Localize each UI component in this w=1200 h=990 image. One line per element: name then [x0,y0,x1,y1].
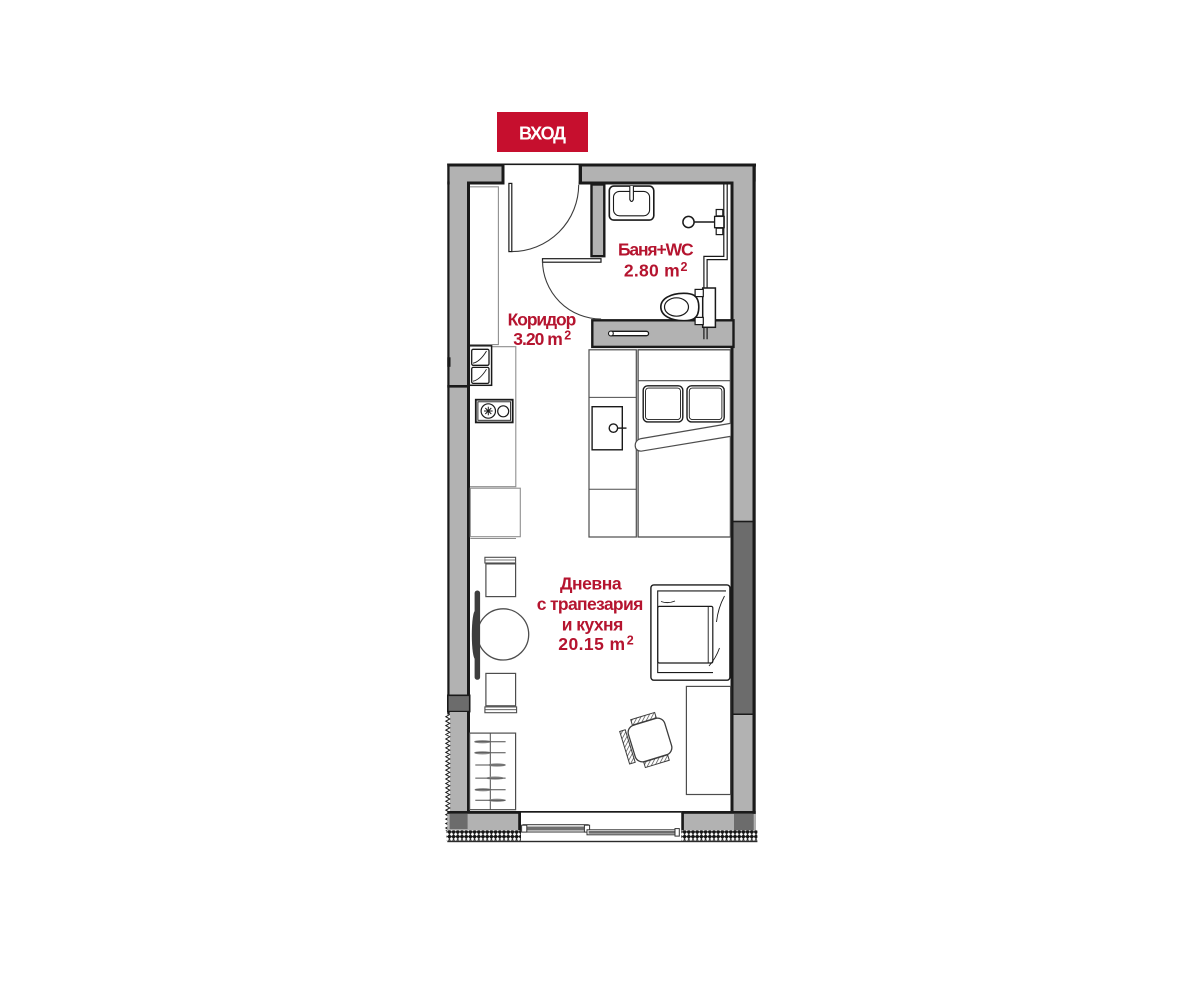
svg-text:2: 2 [681,260,688,274]
svg-text:Коридор: Коридор [508,309,577,329]
svg-text:и кухня: и кухня [562,614,624,634]
svg-text:Дневна: Дневна [560,573,622,593]
svg-text:Баня+WC: Баня+WC [618,239,694,259]
svg-text:20.15 m: 20.15 m [558,634,625,654]
svg-text:ВХОД: ВХОД [519,124,566,144]
svg-text:с трапезария: с трапезария [537,594,644,614]
svg-text:2.80 m: 2.80 m [624,260,680,280]
svg-text:2: 2 [627,634,634,648]
svg-text:2: 2 [564,329,571,343]
svg-text:3.20 m: 3.20 m [513,329,563,349]
